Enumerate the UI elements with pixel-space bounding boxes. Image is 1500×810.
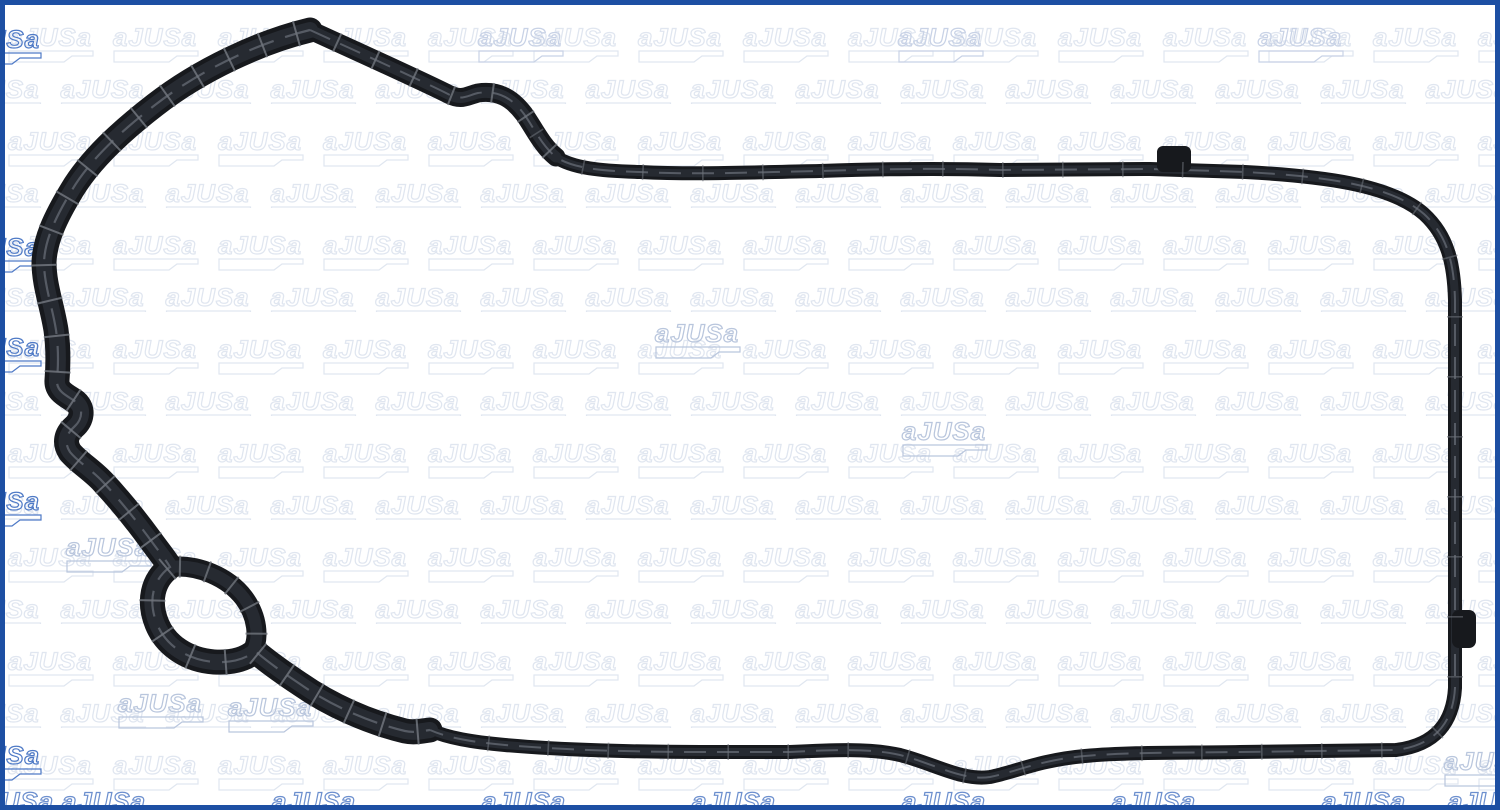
gasket-rib-tick bbox=[180, 556, 181, 578]
gasket-rib-tick bbox=[823, 163, 824, 179]
gasket-rib-tick bbox=[1243, 164, 1244, 180]
watermark-pattern bbox=[0, 0, 1500, 810]
gasket-tab-top bbox=[1157, 146, 1191, 172]
gasket-rib-tick bbox=[139, 600, 165, 601]
gasket-rib-tick bbox=[643, 164, 644, 180]
gasket-tab-right bbox=[1452, 610, 1476, 648]
gasket-rib-tick bbox=[31, 265, 57, 266]
gasket-rib-tick bbox=[1183, 162, 1184, 178]
gasket-rib-tick bbox=[548, 740, 549, 756]
gasket-product-image: aJUSa bbox=[0, 0, 1500, 810]
gasket-rib-tick bbox=[608, 743, 609, 759]
product-photo-frame: aJUSa bbox=[0, 0, 1500, 810]
